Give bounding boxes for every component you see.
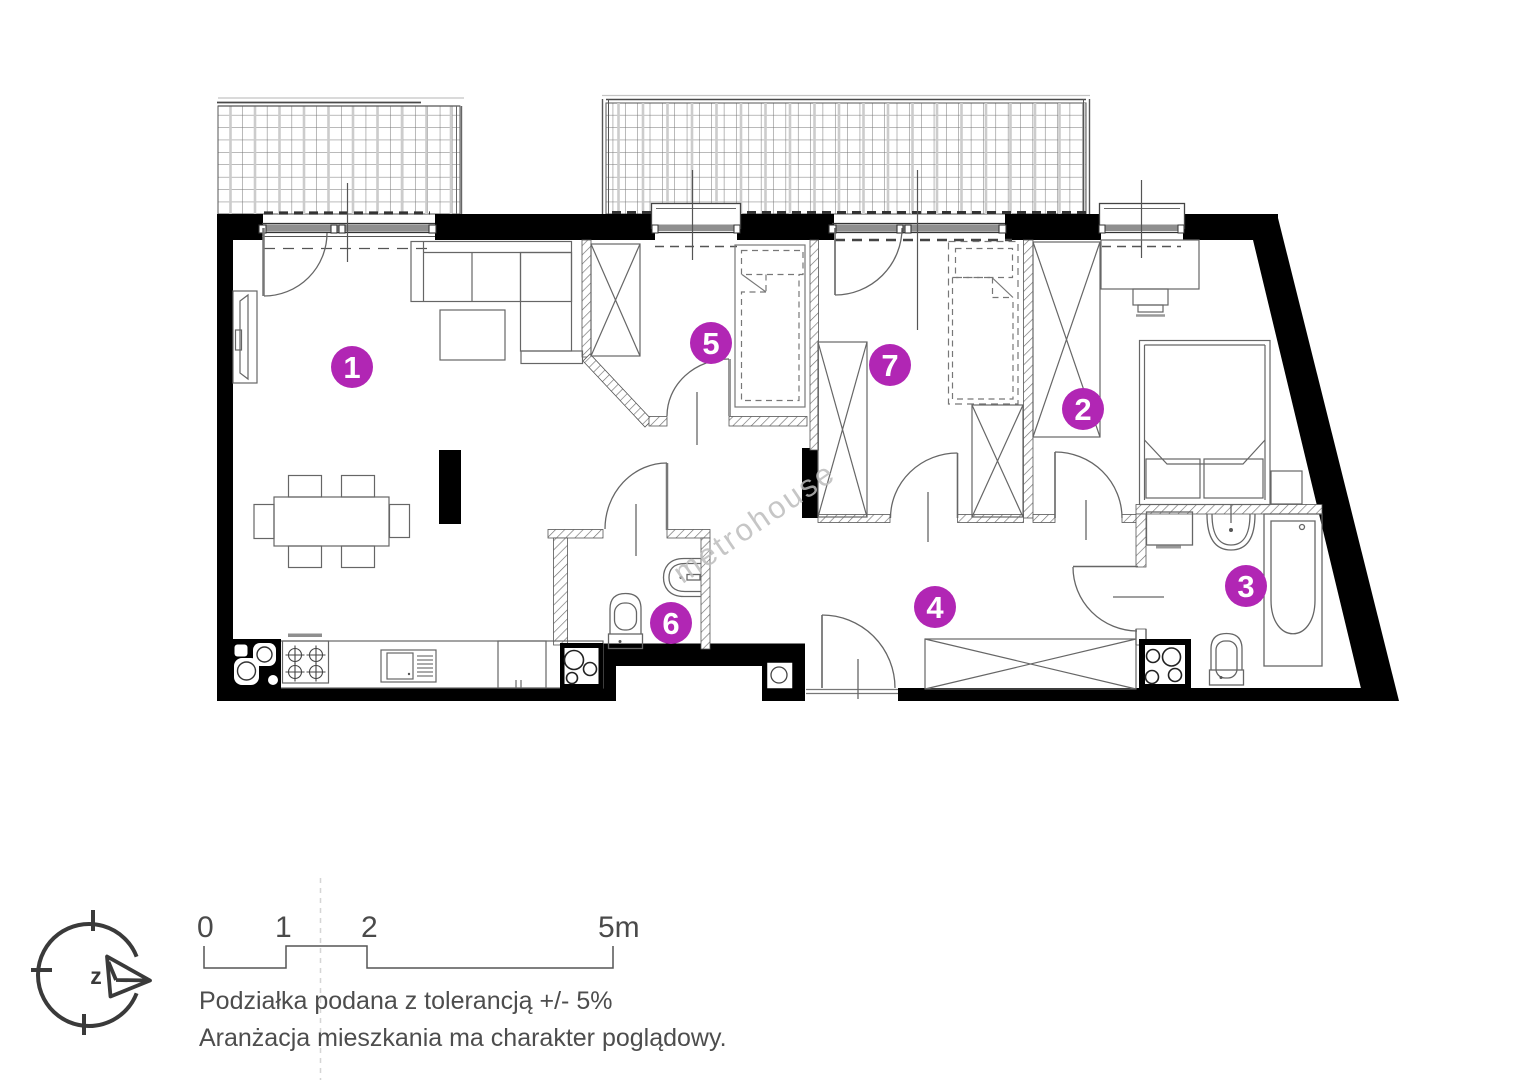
svg-text:6: 6 [662,606,679,641]
svg-text:z: z [90,963,102,989]
svg-text:Aranżacja mieszkania ma charak: Aranżacja mieszkania ma charakter pogląd… [199,1024,727,1052]
svg-text:4: 4 [926,590,944,625]
svg-text:2: 2 [361,911,378,944]
svg-text:3: 3 [1237,569,1254,604]
svg-text:0: 0 [197,911,214,944]
svg-text:2: 2 [1074,392,1091,427]
svg-text:1: 1 [343,350,360,385]
svg-text:1: 1 [275,911,292,944]
svg-text:5: 5 [702,326,719,361]
svg-text:5m: 5m [598,911,640,944]
svg-text:Podziałka podana z tolerancją: Podziałka podana z tolerancją +/- 5% [199,987,612,1015]
svg-text:7: 7 [881,348,898,383]
